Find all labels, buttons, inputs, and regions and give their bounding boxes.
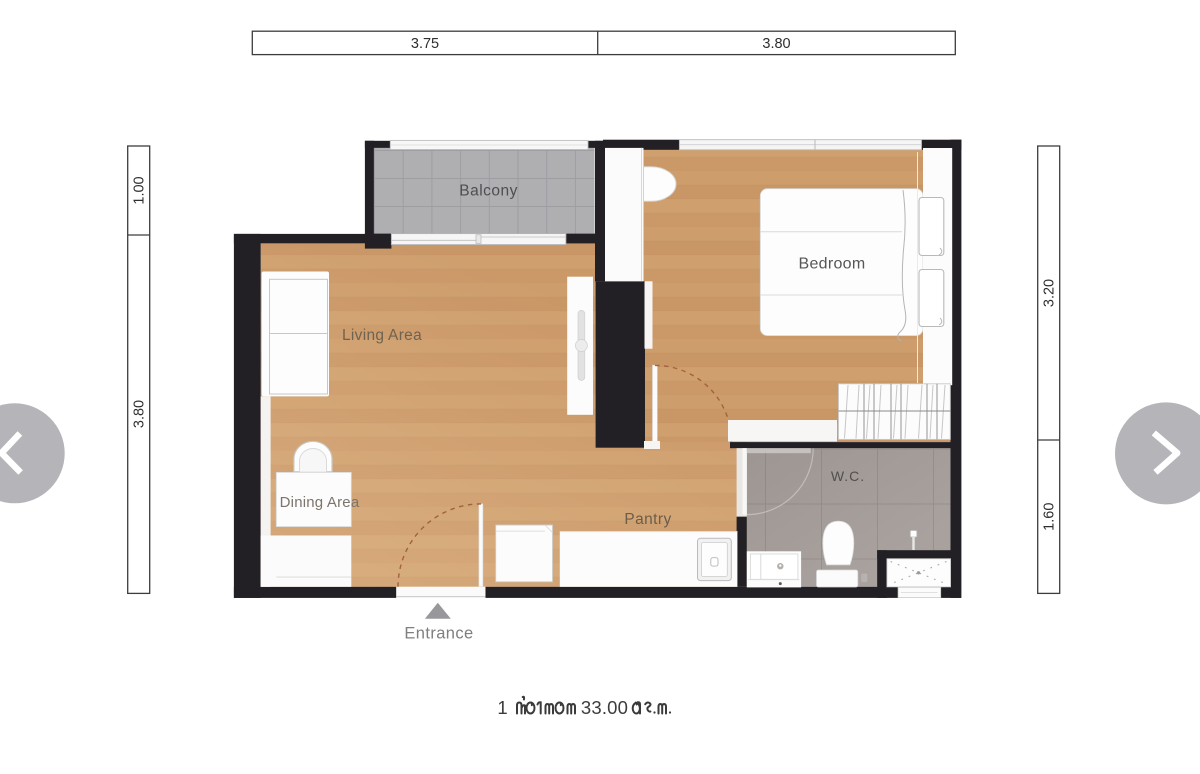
svg-text:Pantry: Pantry (624, 511, 671, 528)
svg-text:33.00: 33.00 (581, 697, 628, 718)
svg-text:Balcony: Balcony (459, 183, 518, 200)
svg-text:3.80: 3.80 (132, 400, 148, 428)
svg-text:Living Area: Living Area (342, 327, 422, 344)
svg-text:1: 1 (497, 697, 507, 718)
svg-text:3.80: 3.80 (762, 36, 790, 52)
svg-text:1.60: 1.60 (1042, 503, 1058, 531)
svg-text:1.00: 1.00 (132, 176, 148, 204)
svg-text:Bedroom: Bedroom (798, 256, 865, 273)
svg-text:3.20: 3.20 (1042, 279, 1058, 307)
svg-text:3.75: 3.75 (411, 36, 439, 52)
svg-text:Entrance: Entrance (404, 625, 473, 643)
svg-text:Dining Area: Dining Area (280, 494, 360, 511)
svg-text:W.C.: W.C. (831, 468, 865, 484)
